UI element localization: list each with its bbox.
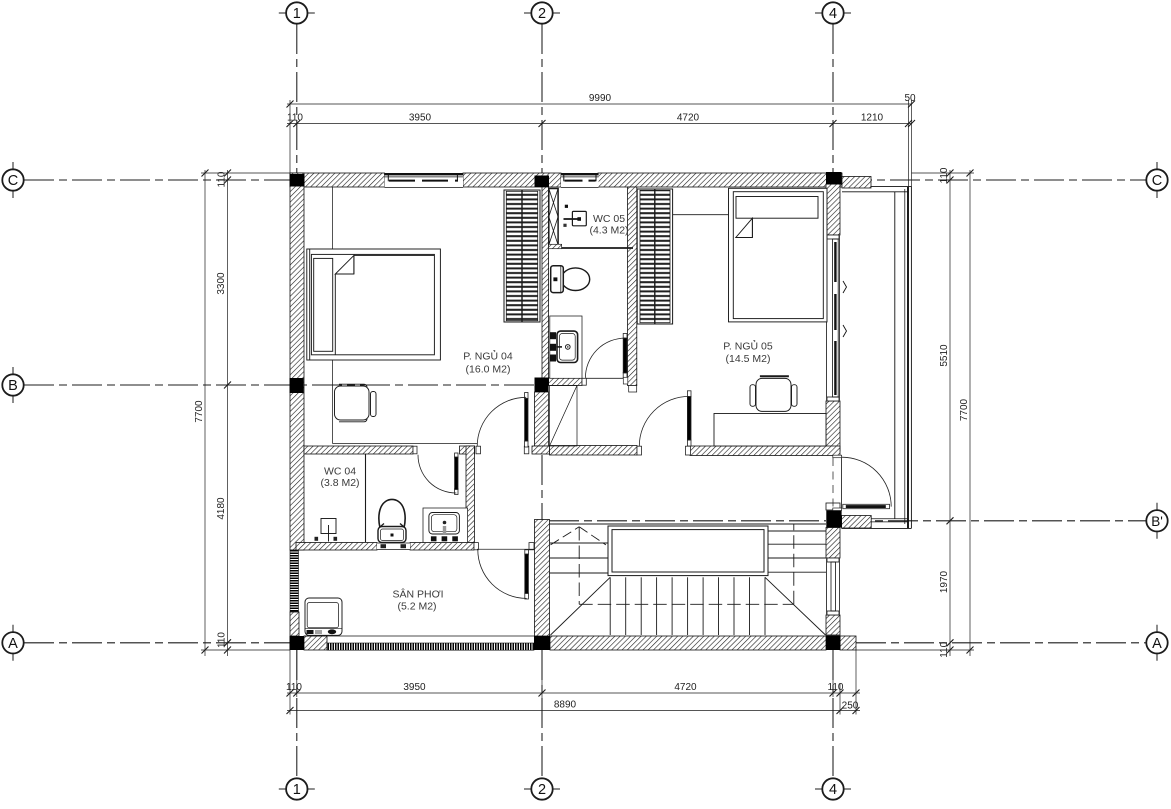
svg-text:4720: 4720	[674, 682, 697, 693]
svg-text:7700: 7700	[194, 400, 205, 423]
svg-text:1: 1	[293, 782, 301, 798]
svg-text:P. NGỦ 05: P. NGỦ 05	[723, 340, 773, 353]
svg-text:(14.5 M2): (14.5 M2)	[726, 353, 771, 365]
svg-text:9990: 9990	[589, 93, 612, 104]
svg-text:(5.2 M2): (5.2 M2)	[397, 601, 436, 613]
svg-text:4: 4	[829, 6, 837, 22]
svg-text:110: 110	[217, 632, 228, 648]
svg-text:110: 110	[217, 171, 228, 187]
svg-text:A: A	[1152, 636, 1162, 652]
svg-text:2: 2	[538, 6, 546, 22]
svg-text:(16.0 M2): (16.0 M2)	[466, 364, 511, 376]
svg-text:7700: 7700	[959, 398, 970, 421]
svg-text:110: 110	[939, 641, 950, 657]
svg-text:3950: 3950	[403, 682, 426, 693]
svg-text:2: 2	[538, 782, 546, 798]
svg-text:110: 110	[287, 113, 303, 124]
svg-text:110: 110	[286, 682, 302, 693]
svg-text:50: 50	[904, 93, 916, 104]
svg-text:1210: 1210	[861, 113, 884, 124]
svg-text:(4.3 M2): (4.3 M2)	[589, 225, 628, 237]
svg-text:5510: 5510	[939, 344, 950, 367]
svg-text:A: A	[8, 636, 18, 652]
svg-text:3300: 3300	[216, 272, 227, 295]
svg-text:SÂN PHƠI: SÂN PHƠI	[392, 588, 443, 601]
svg-text:1: 1	[293, 6, 301, 22]
svg-text:4180: 4180	[216, 497, 227, 520]
svg-text:1970: 1970	[939, 570, 950, 593]
svg-text:B': B'	[1151, 514, 1163, 529]
svg-text:4720: 4720	[677, 113, 700, 124]
svg-text:3950: 3950	[409, 113, 432, 124]
svg-text:B: B	[8, 378, 18, 394]
svg-text:110: 110	[828, 682, 844, 693]
svg-text:WC 05: WC 05	[593, 213, 625, 225]
svg-text:4: 4	[829, 782, 837, 798]
svg-text:C: C	[1152, 173, 1162, 189]
svg-text:WC 04: WC 04	[324, 466, 356, 478]
svg-text:8890: 8890	[554, 700, 577, 711]
svg-text:110: 110	[939, 167, 950, 183]
svg-text:(3.8 M2): (3.8 M2)	[320, 477, 359, 489]
svg-text:P. NGỦ 04: P. NGỦ 04	[463, 350, 513, 363]
svg-text:C: C	[8, 173, 18, 189]
